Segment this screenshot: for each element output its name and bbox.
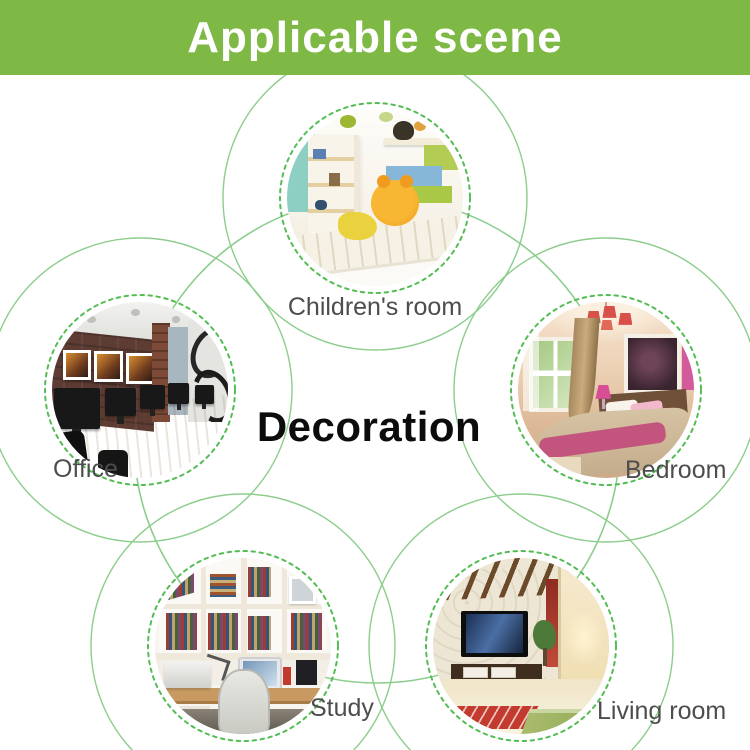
header-banner: Applicable scene: [0, 0, 750, 75]
study-label: Study: [310, 694, 374, 723]
center-title: Decoration: [257, 403, 481, 451]
study-photo: [155, 558, 331, 734]
bedroom-photo: [518, 302, 694, 478]
office-label: Office: [53, 455, 118, 484]
children-room-photo: [287, 110, 463, 286]
living-room-photo: [433, 558, 609, 734]
office-photo: [52, 302, 228, 478]
applicable-scene-page: { "header": { "title": "Applicable scene…: [0, 0, 750, 750]
living-room-label: Living room: [597, 697, 726, 726]
page-title: Applicable scene: [187, 13, 562, 63]
bedroom-label: Bedroom: [625, 456, 726, 485]
children-room-label: Children's room: [288, 293, 462, 322]
